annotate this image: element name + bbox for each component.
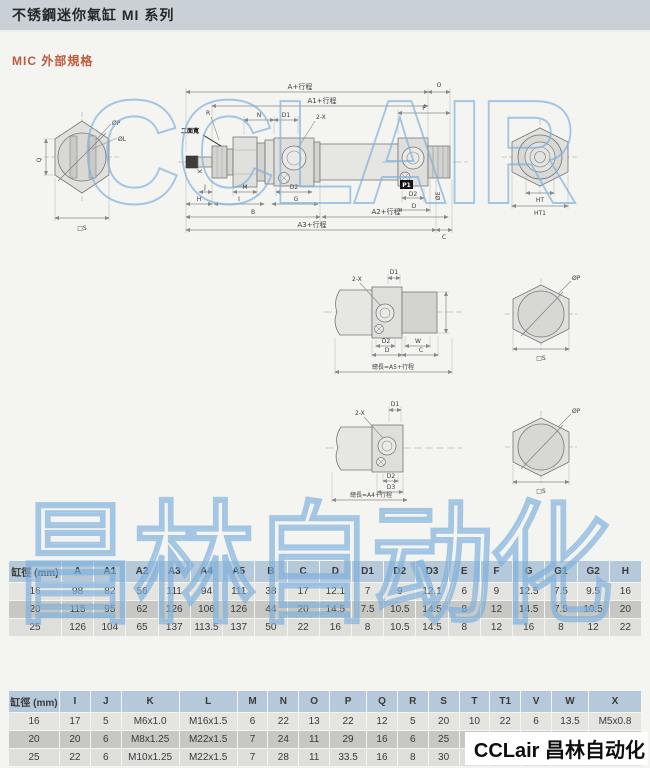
column-header: N: [268, 691, 299, 713]
table-cell: 7: [351, 583, 383, 601]
table-cell: 50: [255, 619, 287, 637]
dim-label-b: B: [251, 209, 255, 216]
dim-label-d1: D1: [391, 401, 400, 408]
table-cell: 20: [609, 601, 641, 619]
table-cell: 30: [428, 749, 459, 767]
column-header: S: [428, 691, 459, 713]
caption-total-a4: 總長=A4+行程: [350, 491, 392, 499]
column-header: A1: [94, 561, 126, 583]
rear-hex-end-view: HT HT1: [502, 120, 578, 217]
column-header: V: [521, 691, 552, 713]
table-cell: 25: [428, 731, 459, 749]
dimension-table-1: 缸徑 (mm)AA1A2A3A4A5BCDD1D2D3EFGG1G2H16988…: [8, 560, 642, 637]
table-cell: 14.5: [416, 619, 448, 637]
brand-logo: CCLair 昌林自动化: [465, 732, 648, 765]
table-cell: 10: [459, 713, 490, 731]
table-cell: 12.1: [319, 583, 351, 601]
rear-threaded-stub: [428, 146, 450, 178]
column-header: G: [513, 561, 545, 583]
column-header: T1: [490, 691, 521, 713]
column-header: B: [255, 561, 287, 583]
table-cell: 8: [397, 749, 428, 767]
table-cell: 25: [9, 619, 62, 637]
table-cell: 14.5: [416, 601, 448, 619]
table-cell: 38: [255, 583, 287, 601]
column-header: A5: [223, 561, 255, 583]
section-label: MIC 外部規格: [12, 52, 93, 69]
front-hex-end-view: ØP ØL Q □S: [36, 112, 127, 232]
column-header: F: [480, 561, 512, 583]
dim-label-a3-stroke: A3+行程: [297, 220, 326, 229]
table-cell: 6: [448, 583, 480, 601]
dim-label-p1: P1: [402, 182, 411, 189]
table-cell: 10.5: [577, 601, 609, 619]
table-cell: 12.1: [416, 583, 448, 601]
dim-label-ht1: HT1: [534, 210, 546, 217]
rod-thread: [186, 156, 198, 168]
dim-label-2x: 2-X: [352, 276, 362, 283]
rear-port-circle: [402, 147, 424, 169]
page-title: 不锈鋼迷你氣缸 MI 系列: [0, 5, 174, 25]
dim-label-n: N: [257, 112, 262, 119]
dim-label-g: G: [294, 196, 299, 203]
dim-label-op: ØP: [112, 120, 121, 127]
header-row: 缸徑 (mm)AA1A2A3A4A5BCDD1D2D3EFGG1G2H: [9, 561, 642, 583]
table-cell: M5x0.8: [589, 713, 642, 731]
table-cell: M22x1.5: [179, 749, 237, 767]
table-cell: 6: [90, 731, 121, 749]
rear-stub: [402, 292, 437, 333]
broken-tube: [336, 427, 372, 470]
caption-total-a5: 總長=A5+行程: [372, 363, 414, 371]
table-cell: 22: [287, 619, 319, 637]
dim-label-d1: D1: [282, 112, 291, 119]
column-header: A: [62, 561, 94, 583]
table-cell: 9: [480, 583, 512, 601]
table-cell: 24: [268, 731, 299, 749]
column-header: D3: [416, 561, 448, 583]
table-cell: 113.5: [190, 619, 222, 637]
dim-label-d3: D3: [387, 484, 396, 491]
table-cell: 9: [384, 583, 416, 601]
table-cell: 6: [237, 713, 268, 731]
table-cell: 33.5: [330, 749, 367, 767]
main-side-view: A+行程 O A1+行程 F N D1 2-X R 二面寬 K J M D2 P…: [178, 82, 468, 241]
table-cell: 8: [545, 619, 577, 637]
column-header: Q: [367, 691, 398, 713]
table-cell: 17: [60, 713, 91, 731]
table-cell: 82: [94, 583, 126, 601]
column-header: G2: [577, 561, 609, 583]
table-cell: 28: [268, 749, 299, 767]
table-cell: 6: [521, 713, 552, 731]
table-cell: 115: [62, 601, 94, 619]
dim-label-d2: D2: [387, 473, 396, 480]
table-cell: 7.5: [351, 601, 383, 619]
table-cell: 17: [287, 583, 319, 601]
table-cell: M8x1.25: [121, 731, 179, 749]
column-header: G1: [545, 561, 577, 583]
table-row: 16175M6x1.0M16x1.56221322125201022613.5M…: [9, 713, 642, 731]
header-row: 缸徑 (mm)IJKLMNOPQRSTT1VWX: [9, 691, 642, 713]
table-cell: 111: [158, 583, 190, 601]
table-cell: M6x1.0: [121, 713, 179, 731]
column-header: E: [448, 561, 480, 583]
table-cell: 22: [609, 619, 641, 637]
table-cell: 94: [190, 583, 222, 601]
dim-label-d1: D1: [390, 269, 399, 276]
table-cell: 6: [397, 731, 428, 749]
dim-label-w: W: [415, 338, 421, 345]
table-cell: 16: [9, 583, 62, 601]
dim-label-q: Q: [36, 157, 43, 162]
table-cell: 16: [367, 731, 398, 749]
dim-label-c: C: [419, 347, 423, 354]
dim-label-d2: D2: [382, 338, 391, 345]
dim-label-ht: HT: [536, 197, 545, 204]
dim-label-ol: ØL: [118, 136, 127, 143]
table-cell: 20: [9, 601, 62, 619]
dim-label-op: ØP: [572, 408, 581, 415]
table-cell: 126: [223, 601, 255, 619]
rod-nut: [212, 146, 227, 178]
dim-label-oe: ØE: [435, 192, 442, 201]
dim-label-sq-s: □S: [536, 488, 546, 495]
table-cell: 126: [158, 601, 190, 619]
table-cell: 16: [367, 749, 398, 767]
column-header: D: [319, 561, 351, 583]
table-cell: 12: [480, 601, 512, 619]
table-cell: 7.5: [545, 583, 577, 601]
table-cell: 20: [287, 601, 319, 619]
table-cell: 65: [126, 619, 158, 637]
variant-hex-view-1: ØP □S: [505, 275, 581, 362]
column-header: J: [90, 691, 121, 713]
table-cell: 7: [237, 749, 268, 767]
dim-label-c: C: [442, 234, 446, 241]
dim-label-two-flats: 二面寬: [181, 127, 199, 135]
dim-label-op: ØP: [572, 275, 581, 282]
mounting-nut: [233, 137, 257, 187]
table-cell: 111: [223, 583, 255, 601]
page-header-bar: 不锈鋼迷你氣缸 MI 系列: [0, 0, 650, 32]
table-cell: 16: [513, 619, 545, 637]
table-cell: 22: [490, 713, 521, 731]
table-cell: 95: [94, 601, 126, 619]
column-header: T: [459, 691, 490, 713]
variant-hex-view-2: ØP □S: [505, 408, 581, 495]
table-cell: 16: [609, 583, 641, 601]
table-cell: 8: [448, 601, 480, 619]
dim-label-j: J: [203, 184, 206, 191]
column-header: A3: [158, 561, 190, 583]
column-header: D2: [384, 561, 416, 583]
column-header: X: [589, 691, 642, 713]
table-cell: 14.5: [319, 601, 351, 619]
table-row: 1698825611194111381712.17912.16912.57.59…: [9, 583, 642, 601]
dim-label-2x: 2-X: [355, 410, 365, 417]
table-cell: 13: [299, 713, 330, 731]
table-cell: 5: [90, 713, 121, 731]
table-cell: 25: [9, 749, 60, 767]
dim-label-d-rear: D: [412, 203, 417, 210]
table-cell: 7: [237, 731, 268, 749]
table-cell: 7.5: [545, 601, 577, 619]
table-cell: 12: [480, 619, 512, 637]
dim-label-f: F: [422, 105, 426, 112]
table-cell: 12: [577, 619, 609, 637]
table-cell: 13.5: [552, 713, 589, 731]
column-header: A2: [126, 561, 158, 583]
dim-label-d: D: [385, 347, 390, 354]
table-cell: 22: [60, 749, 91, 767]
column-header: W: [552, 691, 589, 713]
dim-label-h: H: [197, 196, 202, 203]
column-header: D1: [351, 561, 383, 583]
table-cell: 62: [126, 601, 158, 619]
table-cell: 10.5: [384, 601, 416, 619]
table-cell: 10.5: [384, 619, 416, 637]
table-cell: 20: [60, 731, 91, 749]
dim-label-sq-s: □S: [77, 225, 87, 232]
table-cell: 16: [9, 713, 60, 731]
dim-label-a1-stroke: A1+行程: [307, 96, 336, 105]
dim-label-d2: D2: [290, 184, 299, 191]
variant-view-a4: 2-X D1 D2 D3 總長=A4+行程: [326, 401, 462, 503]
column-header: 缸徑 (mm): [9, 691, 60, 713]
column-header: C: [287, 561, 319, 583]
table-cell: M16x1.5: [179, 713, 237, 731]
table-cell: 126: [62, 619, 94, 637]
table-cell: 16: [319, 619, 351, 637]
table-cell: 104: [94, 619, 126, 637]
table-cell: 12: [367, 713, 398, 731]
column-header: H: [609, 561, 641, 583]
table-cell: 14.5: [513, 601, 545, 619]
table-cell: 44: [255, 601, 287, 619]
table-row: 2512610465137113.5137502216810.514.58121…: [9, 619, 642, 637]
port-circle: [282, 146, 306, 170]
broken-tube: [335, 290, 372, 335]
column-header: A4: [190, 561, 222, 583]
table-cell: 20: [9, 731, 60, 749]
dim-label-m: M: [242, 184, 247, 191]
dim-label-i: I: [238, 196, 240, 203]
dim-label-r: R: [206, 110, 210, 117]
column-header: M: [237, 691, 268, 713]
table-cell: 6: [90, 749, 121, 767]
dim-label-o: O: [437, 82, 442, 89]
column-header: K: [121, 691, 179, 713]
table-cell: 22: [268, 713, 299, 731]
column-header: I: [60, 691, 91, 713]
table-cell: 98: [62, 583, 94, 601]
table-cell: M10x1.25: [121, 749, 179, 767]
column-header: R: [397, 691, 428, 713]
column-header: L: [179, 691, 237, 713]
column-header: 缸徑 (mm): [9, 561, 62, 583]
column-header: P: [330, 691, 367, 713]
table-cell: 137: [223, 619, 255, 637]
table-cell: 56: [126, 583, 158, 601]
piston-rod: [198, 157, 212, 167]
table-cell: 8: [351, 619, 383, 637]
dim-label-k: K: [197, 168, 204, 173]
variant-view-a5: 2-X D1 D2 W D C 總長=A5+行程: [324, 269, 462, 375]
table-cell: 106: [190, 601, 222, 619]
table-cell: 22: [330, 713, 367, 731]
table-cell: 11: [299, 749, 330, 767]
dim-label-d2-rear: D2: [409, 191, 418, 198]
dim-label-a2-stroke: A2+行程: [371, 207, 400, 216]
table-cell: 11: [299, 731, 330, 749]
table-cell: 9.5: [577, 583, 609, 601]
table-cell: 5: [397, 713, 428, 731]
table-cell: 12.5: [513, 583, 545, 601]
dim-label-a-stroke: A+行程: [288, 82, 313, 91]
table-row: 201159562126106126442014.57.510.514.5812…: [9, 601, 642, 619]
table-cell: 20: [428, 713, 459, 731]
dim-label-2x: 2-X: [316, 114, 326, 121]
table-cell: 8: [448, 619, 480, 637]
technical-drawing: ØP ØL Q □S: [0, 80, 650, 505]
dim-label-sq-s: □S: [536, 355, 546, 362]
column-header: O: [299, 691, 330, 713]
table-cell: 137: [158, 619, 190, 637]
table-cell: M22x1.5: [179, 731, 237, 749]
table-cell: 29: [330, 731, 367, 749]
